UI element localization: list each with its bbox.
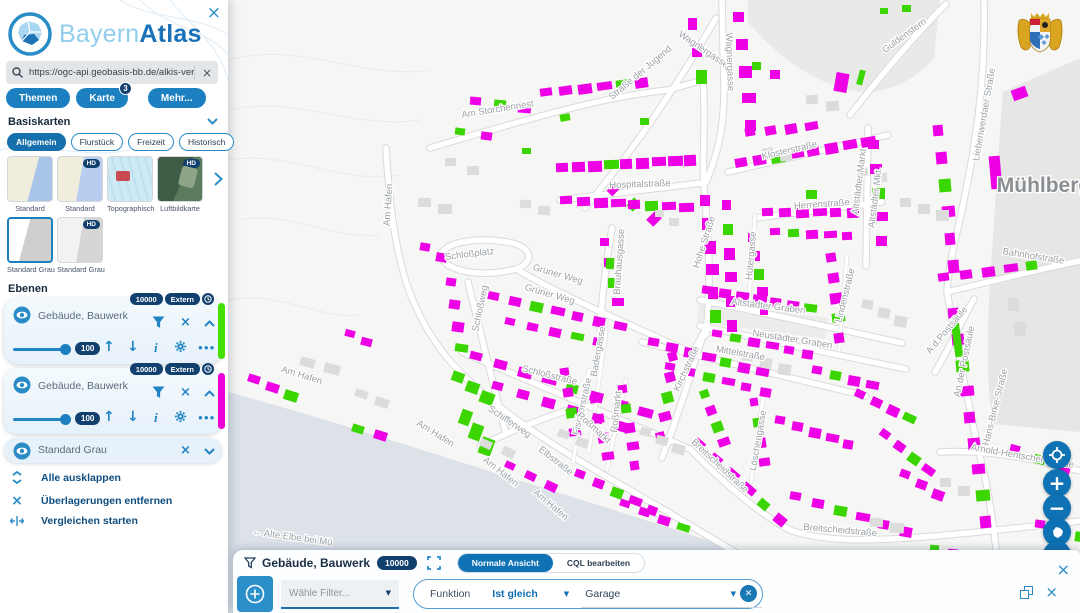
map-building	[688, 18, 697, 30]
expand-all-icon	[10, 471, 24, 484]
map-building	[706, 264, 719, 275]
tab-historisch[interactable]: Historisch	[179, 133, 234, 151]
geolocate-button[interactable]	[1043, 441, 1071, 469]
map-building	[935, 152, 947, 165]
map-building	[764, 125, 776, 136]
map-building	[679, 203, 694, 213]
map-building	[736, 39, 748, 50]
basemap-standard-hd[interactable]: HD Standard	[57, 156, 103, 213]
tab-allgemein[interactable]: Allgemein	[7, 133, 66, 151]
funnel-icon	[152, 316, 165, 329]
map-building	[480, 131, 492, 140]
operator-caret-icon[interactable]: ▼	[564, 590, 569, 598]
map-building	[744, 127, 755, 137]
map-building	[900, 198, 911, 207]
map-building	[842, 232, 852, 241]
map-building	[870, 517, 884, 527]
base-layer-remove-button[interactable]: ×	[180, 443, 191, 458]
layer-move-up-button[interactable]: ↑	[103, 339, 115, 355]
map-building	[972, 463, 986, 474]
layer-visibility-toggle[interactable]	[13, 376, 31, 399]
map-building	[959, 269, 972, 280]
remove-overlays-label: Überlagerungen entfernen	[41, 495, 172, 507]
map-building	[455, 127, 466, 135]
map-building	[833, 332, 844, 343]
hd-badge: HD	[83, 220, 100, 229]
start-compare-link[interactable]: Vergleichen starten	[10, 515, 138, 527]
brand-title: BayernAtlas	[59, 20, 202, 49]
expand-all-label: Alle ausklappen	[41, 472, 121, 484]
value-caret-icon[interactable]: ▼	[731, 590, 736, 598]
clear-value-button[interactable]: ✕	[740, 585, 757, 602]
map-building	[562, 387, 573, 397]
filter-funnel-outline-icon	[244, 557, 256, 569]
map-building	[824, 231, 837, 239]
map-building	[556, 163, 568, 172]
filter-value-input[interactable]: Garage ▼ ✕	[581, 580, 762, 608]
layer-count-badge: 10000	[130, 363, 163, 375]
map-building	[825, 252, 836, 262]
filter-panel-title: Gebäude, Bauwerk	[262, 556, 370, 570]
map-building	[538, 205, 551, 215]
layer-opacity-slider[interactable]	[13, 348, 62, 351]
nav-themen-button[interactable]: Themen	[6, 88, 70, 108]
map-building	[933, 125, 944, 137]
choose-filter-placeholder: Wähle Filter...	[289, 588, 386, 599]
layer-name: Gebäude, Bauwerk	[38, 380, 128, 392]
operator-select[interactable]: Ist gleich	[492, 588, 538, 600]
map-building	[600, 238, 609, 246]
map-building	[808, 427, 822, 439]
map-building	[723, 224, 733, 235]
main-nav: Themen Karte 3 Mehr...	[6, 88, 206, 108]
map-building	[662, 202, 676, 210]
map-building	[655, 210, 664, 217]
map-building	[684, 155, 696, 166]
layer-collapse-icon[interactable]	[204, 390, 215, 397]
basemap-luftbildkarte[interactable]: HD Luftbildkarte	[157, 156, 203, 213]
map-building	[710, 310, 721, 323]
eye-icon	[13, 376, 31, 394]
choose-filter-select[interactable]: Wähle Filter... ▼	[281, 580, 399, 609]
map-building	[604, 160, 619, 170]
slider-knob[interactable]	[60, 414, 71, 425]
map-building	[979, 516, 991, 529]
map-building	[522, 148, 531, 154]
sidebar: × BayernAtlas https://ogc-api.geobasis-b…	[0, 0, 228, 613]
clock-icon	[202, 363, 214, 375]
street-label: Wagnergasse	[723, 33, 736, 92]
cql-bearbeiten-tab[interactable]: CQL bearbeiten	[553, 554, 644, 572]
basemap-standard-grau-selected[interactable]: Standard Grau	[7, 217, 53, 274]
bayernatlas-logo-icon	[8, 12, 52, 56]
map-building	[824, 142, 839, 155]
bavaria-coat-of-arms	[1016, 11, 1064, 55]
layer-remove-button[interactable]: ×	[180, 315, 191, 330]
map-building	[594, 198, 608, 208]
layer-count-badge: 10000	[130, 293, 163, 305]
map-building	[520, 200, 532, 209]
layer-card-gebaeude-2: 10000 Extern Gebäude, Bauwerk ×	[4, 368, 222, 434]
map-building	[861, 299, 873, 310]
map-building	[629, 460, 639, 470]
basemap-caption: Standard	[57, 204, 103, 213]
map-building	[438, 204, 452, 214]
layer-color-stripe-green	[218, 303, 225, 359]
base-layer-row: Standard Grau ×	[4, 438, 222, 463]
layer-more-button[interactable]: ●●●	[198, 343, 216, 352]
map-building	[612, 298, 624, 306]
map-building	[868, 140, 879, 149]
map-building	[725, 272, 737, 282]
map-building	[628, 200, 640, 209]
map-building	[1008, 298, 1019, 311]
map-building	[937, 272, 949, 281]
map-building	[1014, 322, 1026, 336]
layer-settings-gear-icon[interactable]	[174, 410, 187, 423]
map-building	[902, 5, 911, 12]
zoom-to-extent-icon[interactable]	[427, 556, 441, 570]
add-filter-button[interactable]	[237, 576, 273, 612]
map-building	[811, 365, 822, 375]
karte-count-badge: 3	[119, 82, 132, 95]
map-building	[806, 190, 817, 199]
map-building	[890, 522, 905, 533]
map-building	[826, 100, 840, 111]
detach-window-icon[interactable]	[1020, 586, 1033, 599]
brand-part2: Atlas	[139, 20, 201, 48]
layer-move-down-button[interactable]: ↓	[127, 409, 139, 425]
map-building	[783, 345, 794, 354]
eye-icon	[13, 442, 31, 460]
map-building	[757, 287, 768, 296]
map-building	[445, 277, 456, 286]
clock-icon	[202, 293, 214, 305]
basemap-standard[interactable]: Standard	[7, 156, 53, 213]
map-building	[668, 156, 683, 167]
normale-ansicht-tab[interactable]: Normale Ansicht	[458, 554, 553, 572]
filter-row-close-icon[interactable]: ×	[1045, 583, 1058, 601]
map-building	[877, 307, 891, 319]
map-building	[880, 8, 888, 14]
layer-info-button[interactable]: i	[154, 410, 158, 426]
layer-info-button[interactable]: i	[154, 340, 158, 356]
city-label: Mühlberg	[997, 174, 1080, 197]
map-building	[470, 97, 482, 106]
map-building	[777, 363, 791, 376]
map-building	[976, 489, 991, 501]
layer-move-down-button[interactable]: ↓	[127, 339, 139, 355]
map-building	[669, 218, 679, 226]
map-building	[749, 397, 758, 406]
map-building	[620, 159, 632, 169]
search-input[interactable]: https://ogc-api.geobasis-bb.de/alkis-ver…	[6, 61, 218, 84]
filter-value-text: Garage	[581, 588, 730, 600]
map-building	[918, 204, 930, 214]
hd-badge: HD	[183, 159, 200, 168]
nav-karte-button[interactable]: Karte 3	[76, 88, 128, 108]
map-building	[774, 415, 785, 425]
search-clear-icon[interactable]: ×	[194, 66, 212, 80]
map-building	[724, 248, 735, 260]
funnel-icon	[152, 386, 165, 399]
map-building	[589, 394, 599, 403]
map-building	[727, 320, 737, 332]
layer-settings-gear-icon[interactable]	[174, 340, 187, 353]
map-building	[577, 197, 590, 206]
function-label: Funktion	[430, 588, 470, 600]
map-building	[791, 421, 803, 432]
map-building	[737, 362, 751, 374]
map-building	[645, 201, 658, 211]
map-building	[729, 333, 741, 343]
map-building	[742, 93, 756, 103]
map-building	[722, 200, 731, 210]
plus-circle-icon	[245, 584, 265, 604]
base-layer-visibility-toggle[interactable]	[13, 442, 31, 465]
map-building	[964, 412, 976, 424]
remove-overlays-icon: ×	[10, 493, 24, 509]
map-building	[788, 229, 799, 238]
basemap-standard-grau-hd[interactable]: HD Standard Grau	[57, 217, 103, 274]
bayernatlas-app: Am StorchennestWagnergasseWagnergasseStr…	[0, 0, 1080, 613]
filter-panel-header: Gebäude, Bauwerk 10000 Normale Ansicht C…	[233, 550, 1080, 576]
map-building	[700, 195, 710, 206]
map-building	[627, 441, 640, 451]
layer-filter-button[interactable]	[152, 316, 165, 334]
layer-color-stripe-magenta	[218, 373, 225, 429]
map-building	[829, 370, 841, 381]
layer-filter-button[interactable]	[152, 386, 165, 404]
basemap-caption: Topographisch	[107, 204, 153, 213]
layer-remove-button[interactable]: ×	[180, 385, 191, 400]
basemap-caption: Standard Grau	[57, 265, 103, 274]
map-building	[981, 266, 995, 278]
map-building	[770, 70, 780, 79]
map-building	[842, 439, 853, 450]
filter-panel: Gebäude, Bauwerk 10000 Normale Ansicht C…	[233, 550, 1080, 613]
layer-opacity-value: 100	[75, 412, 100, 425]
map-building	[947, 260, 959, 274]
panel-window-actions: ×	[1020, 583, 1058, 601]
basiskarten-heading: Basiskarten	[8, 116, 70, 128]
chevron-down-icon: ▼	[386, 589, 391, 597]
hd-badge: HD	[83, 159, 100, 168]
basemap-topographisch[interactable]: Topographisch	[107, 156, 153, 213]
map-building	[451, 321, 464, 333]
layer-extern-badge: Extern	[165, 363, 200, 375]
map-building	[588, 161, 602, 172]
map-building	[467, 166, 479, 175]
search-icon	[12, 67, 23, 78]
layer-opacity-value: 100	[75, 342, 100, 355]
minus-icon: −	[1049, 498, 1066, 518]
map-building	[719, 357, 731, 368]
map-building	[636, 158, 649, 169]
map-building	[572, 162, 585, 172]
map-building	[779, 208, 791, 218]
view-toggle: Normale Ansicht CQL bearbeiten	[457, 553, 645, 573]
map-building	[958, 486, 970, 496]
map-building	[718, 288, 731, 298]
map-building	[623, 422, 635, 433]
basemap-caption: Standard	[7, 204, 53, 213]
plus-icon: +	[1049, 473, 1066, 493]
map-building	[418, 198, 431, 207]
map-building	[702, 285, 714, 294]
map-building	[938, 179, 951, 193]
filter-count-badge: 10000	[377, 556, 417, 570]
layer-opacity-slider[interactable]	[13, 418, 62, 421]
base-layer-name: Standard Grau	[38, 444, 107, 456]
start-compare-label: Vergleichen starten	[41, 515, 138, 527]
expand-all-link[interactable]: Alle ausklappen	[10, 471, 121, 484]
geolocate-icon	[1049, 447, 1065, 463]
map-building	[696, 70, 707, 84]
map-building	[448, 299, 460, 309]
filter-expression-group: Funktion Ist gleich ▼ Garage ▼ ✕	[413, 579, 763, 609]
nav-mehr-button[interactable]: Mehr...	[148, 88, 206, 108]
map-building	[560, 196, 572, 204]
basemap-thumbnails: Standard HD Standard Topographisch HD Lu…	[7, 156, 208, 274]
filter-row: Wähle Filter... ▼ Funktion Ist gleich ▼ …	[233, 575, 1080, 613]
layer-collapse-icon[interactable]	[204, 320, 215, 327]
basemap-caption: Luftbildkarte	[157, 204, 203, 213]
map-building	[558, 85, 572, 96]
map-building	[936, 210, 949, 221]
map-building	[806, 230, 818, 240]
zoom-in-button[interactable]: +	[1043, 469, 1071, 497]
map-building	[445, 158, 456, 166]
base-layer-expand-icon[interactable]	[204, 448, 215, 455]
layer-name: Gebäude, Bauwerk	[38, 310, 128, 322]
basiskarten-collapse-icon[interactable]	[207, 118, 218, 125]
map-building	[759, 387, 771, 398]
map-building	[733, 12, 744, 22]
logo[interactable]: BayernAtlas	[8, 12, 202, 56]
bavaria-shape-icon	[1050, 525, 1065, 540]
tab-freizeit[interactable]: Freizeit	[128, 133, 174, 151]
layer-move-up-button[interactable]: ↑	[103, 409, 115, 425]
basemap-tabs: Allgemein Flurstück Freizeit Historisch	[7, 133, 234, 151]
sidebar-close-icon[interactable]: ×	[207, 5, 221, 22]
map-building	[940, 478, 951, 487]
slider-knob[interactable]	[60, 344, 71, 355]
map-building	[752, 62, 761, 70]
map-building	[876, 236, 887, 246]
layer-more-button[interactable]: ●●●	[198, 413, 216, 422]
map-building	[602, 451, 615, 461]
map-building	[784, 123, 798, 135]
nav-mehr-label: Mehr...	[161, 93, 193, 104]
thumbnails-next-icon[interactable]	[214, 172, 223, 186]
nav-themen-label: Themen	[19, 93, 57, 104]
ebenen-heading: Ebenen	[8, 283, 48, 295]
brand-part1: Bayern	[59, 20, 139, 48]
map-building	[893, 315, 908, 328]
map-building	[652, 157, 666, 166]
basemap-caption: Standard Grau	[7, 265, 53, 274]
map-building	[770, 228, 780, 236]
map-building	[419, 242, 430, 252]
map-building	[847, 375, 861, 387]
street-label: Hospitalstraße	[609, 178, 671, 191]
map-building	[762, 208, 773, 217]
layer-extern-badge: Extern	[165, 293, 200, 305]
layer-visibility-toggle[interactable]	[13, 306, 31, 329]
compare-arrows-icon	[10, 516, 24, 526]
search-value: https://ogc-api.geobasis-bb.de/alkis-ver…	[29, 67, 194, 78]
map-building	[801, 349, 813, 360]
layer-card-gebaeude-1: 10000 Extern Gebäude, Bauwerk ×	[4, 298, 222, 364]
map-building	[827, 272, 839, 283]
map-building	[806, 94, 819, 104]
eye-icon	[13, 306, 31, 324]
tab-flurstueck[interactable]: Flurstück	[71, 133, 123, 151]
map-building	[577, 83, 592, 95]
map-building	[540, 87, 553, 97]
remove-overlays-link[interactable]: × Überlagerungen entfernen	[10, 493, 172, 509]
map-building	[611, 199, 626, 208]
map-building	[739, 66, 752, 78]
map-building	[640, 118, 649, 125]
nav-karte-label: Karte	[89, 93, 115, 104]
map-building	[944, 233, 955, 246]
map-building	[740, 382, 751, 392]
